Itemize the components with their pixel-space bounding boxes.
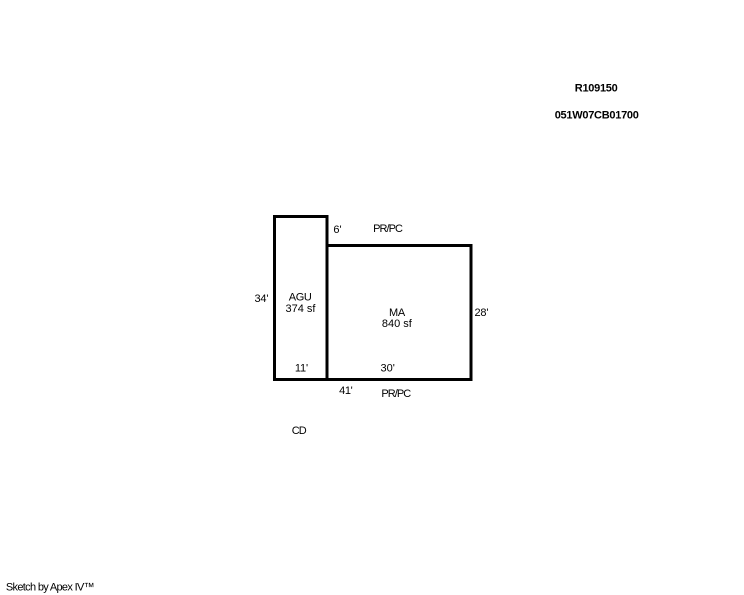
svg-text:34': 34' [255,293,269,305]
svg-text:CD: CD [292,425,307,437]
svg-text:Sketch by Apex IV™: Sketch by Apex IV™ [6,582,94,594]
svg-text:30': 30' [381,363,395,375]
svg-text:374 sf: 374 sf [286,303,317,315]
svg-text:R109150: R109150 [575,83,618,95]
svg-text:6': 6' [333,224,341,236]
svg-text:PR/PC: PR/PC [381,388,411,400]
svg-text:051W07CB01700: 051W07CB01700 [555,110,639,122]
svg-text:AGU: AGU [289,292,312,304]
svg-text:41': 41' [339,385,353,397]
svg-text:28': 28' [475,307,489,319]
svg-text:840 sf: 840 sf [382,318,413,330]
svg-text:11': 11' [295,363,308,375]
svg-text:PR/PC: PR/PC [373,223,403,235]
